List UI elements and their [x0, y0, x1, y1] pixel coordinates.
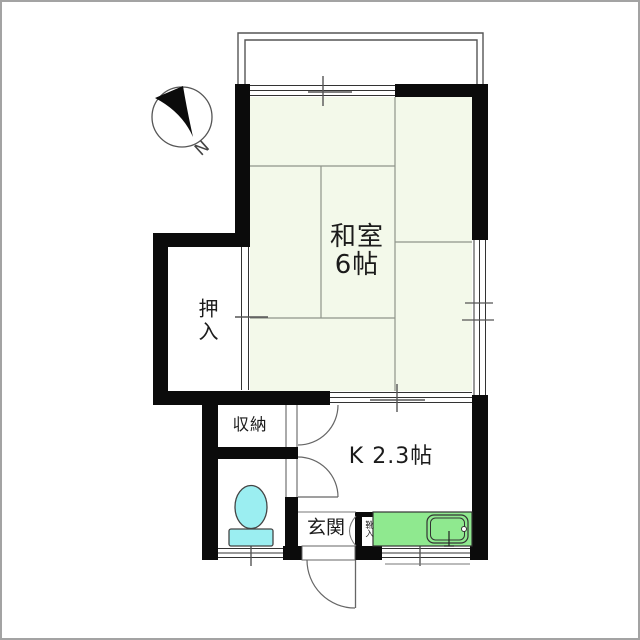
toilet	[229, 486, 273, 547]
sink-drain	[462, 527, 467, 532]
shuunou-door-arc	[298, 405, 338, 445]
toilet-tank	[229, 529, 273, 546]
floorplan-canvas: N 和室 6帖 押入 収納 K 2.3帖 玄関 靴入	[0, 0, 640, 640]
floorplan-drawing: N	[0, 0, 640, 640]
entrance-label: 玄関	[307, 518, 345, 539]
balcony	[238, 33, 483, 90]
compass-north-letter: N	[191, 137, 214, 160]
kitchen-sink	[373, 512, 472, 546]
north-arrow-icon	[155, 86, 193, 137]
storage-label: 収納	[233, 416, 268, 434]
entrance-door	[302, 546, 356, 608]
compass: N	[152, 86, 214, 160]
oshiire-closet-label: 押入	[196, 298, 218, 344]
toilet-bowl	[235, 486, 267, 529]
toilet-door	[298, 457, 338, 497]
kitchen-label: K 2.3帖	[349, 445, 433, 469]
shoe-cabinet-label: 靴入	[363, 521, 372, 538]
washitsu-room-label: 和室 6帖	[330, 223, 384, 279]
